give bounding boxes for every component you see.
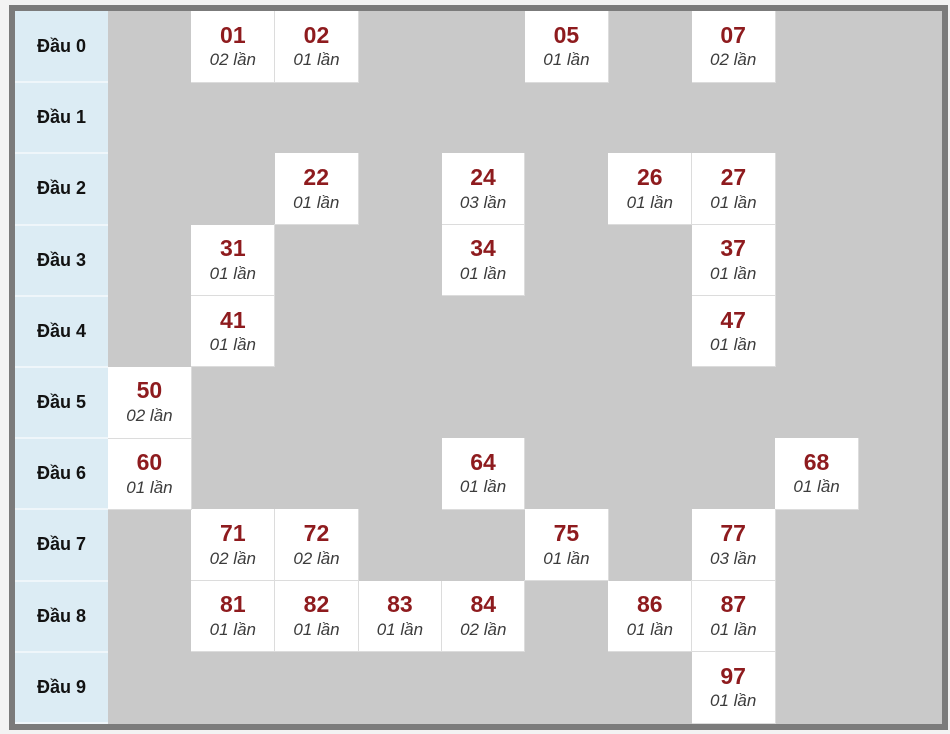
empty-cell xyxy=(608,438,691,509)
table-row-dau-3: Đầu 33101 lần3401 lần3701 lần xyxy=(15,225,942,296)
cell-count: 01 lần xyxy=(608,619,691,642)
number-cell-50: 5002 lần xyxy=(108,367,191,438)
cell-count: 01 lần xyxy=(442,476,525,499)
row-label-dau-3: Đầu 3 xyxy=(15,225,108,296)
table-row-dau-8: Đầu 88101 lần8201 lần8301 lần8402 lần860… xyxy=(15,581,942,652)
empty-cell xyxy=(775,581,858,652)
cell-number: 75 xyxy=(525,519,608,548)
empty-cell xyxy=(859,225,942,296)
empty-cell xyxy=(775,153,858,224)
empty-cell xyxy=(859,367,942,438)
number-cell-22: 2201 lần xyxy=(275,153,358,224)
cell-number: 02 xyxy=(275,21,357,50)
empty-cell xyxy=(275,367,358,438)
number-cell-24: 2403 lần xyxy=(442,153,525,224)
cell-number: 24 xyxy=(442,163,525,192)
cell-number: 83 xyxy=(359,590,441,619)
empty-cell xyxy=(525,225,608,296)
cell-count: 02 lần xyxy=(275,548,357,571)
cell-number: 72 xyxy=(275,519,357,548)
cell-count: 01 lần xyxy=(359,619,441,642)
empty-cell xyxy=(358,367,441,438)
empty-cell xyxy=(859,438,942,509)
empty-cell xyxy=(608,11,691,82)
number-cell-01: 0102 lần xyxy=(191,11,274,82)
table-row-dau-4: Đầu 44101 lần4701 lần xyxy=(15,296,942,367)
cell-count: 01 lần xyxy=(692,192,774,215)
empty-cell xyxy=(525,153,608,224)
cell-number: 26 xyxy=(608,163,691,192)
empty-cell xyxy=(191,652,274,723)
empty-cell xyxy=(608,652,691,723)
empty-cell xyxy=(775,296,858,367)
empty-cell xyxy=(775,82,858,153)
cell-number: 27 xyxy=(692,163,774,192)
number-cell-81: 8101 lần xyxy=(191,581,274,652)
cell-number: 84 xyxy=(442,590,524,619)
cell-number: 68 xyxy=(775,448,858,477)
cell-count: 01 lần xyxy=(191,619,274,642)
empty-cell xyxy=(442,11,525,82)
empty-cell xyxy=(275,652,358,723)
empty-cell xyxy=(775,652,858,723)
cell-number: 41 xyxy=(191,306,274,335)
empty-cell xyxy=(608,296,691,367)
cell-count: 02 lần xyxy=(442,619,524,642)
number-cell-75: 7501 lần xyxy=(525,509,608,580)
empty-cell xyxy=(108,652,191,723)
empty-cell xyxy=(358,509,441,580)
cell-count: 01 lần xyxy=(692,334,775,357)
row-label-dau-5: Đầu 5 xyxy=(15,367,108,438)
cell-count: 01 lần xyxy=(692,619,774,642)
table-row-dau-0: Đầu 00102 lần0201 lần0501 lần0702 lần xyxy=(15,11,942,82)
empty-cell xyxy=(108,581,191,652)
empty-cell xyxy=(859,296,942,367)
empty-cell xyxy=(358,438,441,509)
empty-cell xyxy=(108,82,191,153)
number-cell-26: 2601 lần xyxy=(608,153,691,224)
table-row-dau-1: Đầu 1 xyxy=(15,82,942,153)
empty-cell xyxy=(692,438,775,509)
cell-count: 01 lần xyxy=(275,619,357,642)
empty-cell xyxy=(191,82,274,153)
empty-cell xyxy=(525,652,608,723)
cell-number: 37 xyxy=(692,234,775,263)
cell-count: 03 lần xyxy=(692,548,775,571)
cell-count: 03 lần xyxy=(442,192,525,215)
empty-cell xyxy=(859,652,942,723)
empty-cell xyxy=(442,509,525,580)
cell-count: 01 lần xyxy=(442,263,525,286)
row-label-dau-6: Đầu 6 xyxy=(15,438,108,509)
number-cell-84: 8402 lần xyxy=(442,581,525,652)
table-row-dau-6: Đầu 66001 lần6401 lần6801 lần xyxy=(15,438,942,509)
number-cell-60: 6001 lần xyxy=(108,438,191,509)
cell-count: 01 lần xyxy=(775,476,858,499)
empty-cell xyxy=(442,82,525,153)
row-label-dau-8: Đầu 8 xyxy=(15,581,108,652)
row-label-dau-2: Đầu 2 xyxy=(15,153,108,224)
frequency-table-frame: Đầu 00102 lần0201 lần0501 lần0702 lầnĐầu… xyxy=(9,5,948,730)
frequency-table-body: Đầu 00102 lần0201 lần0501 lần0702 lầnĐầu… xyxy=(15,11,942,723)
empty-cell xyxy=(608,509,691,580)
empty-cell xyxy=(358,652,441,723)
cell-count: 01 lần xyxy=(692,690,775,713)
cell-number: 77 xyxy=(692,519,775,548)
empty-cell xyxy=(358,225,441,296)
row-label-dau-7: Đầu 7 xyxy=(15,509,108,580)
cell-count: 02 lần xyxy=(191,49,274,72)
empty-cell xyxy=(525,581,608,652)
cell-count: 01 lần xyxy=(275,49,357,72)
row-label-dau-9: Đầu 9 xyxy=(15,652,108,723)
number-cell-47: 4701 lần xyxy=(692,296,775,367)
empty-cell xyxy=(108,296,191,367)
cell-count: 01 lần xyxy=(525,49,608,72)
cell-count: 01 lần xyxy=(108,477,191,500)
number-cell-86: 8601 lần xyxy=(608,581,691,652)
empty-cell xyxy=(442,296,525,367)
cell-number: 82 xyxy=(275,590,357,619)
empty-cell xyxy=(108,153,191,224)
cell-number: 50 xyxy=(108,376,191,405)
number-cell-82: 8201 lần xyxy=(275,581,358,652)
number-cell-34: 3401 lần xyxy=(442,225,525,296)
number-cell-31: 3101 lần xyxy=(191,225,274,296)
number-cell-07: 0702 lần xyxy=(692,11,775,82)
cell-number: 22 xyxy=(275,163,358,192)
cell-count: 01 lần xyxy=(608,192,691,215)
empty-cell xyxy=(859,581,942,652)
table-row-dau-9: Đầu 99701 lần xyxy=(15,652,942,723)
cell-count: 01 lần xyxy=(692,263,775,286)
row-label-dau-4: Đầu 4 xyxy=(15,296,108,367)
empty-cell xyxy=(692,367,775,438)
empty-cell xyxy=(191,367,274,438)
cell-number: 64 xyxy=(442,448,525,477)
cell-number: 97 xyxy=(692,662,775,691)
empty-cell xyxy=(775,225,858,296)
empty-cell xyxy=(859,153,942,224)
empty-cell xyxy=(108,11,191,82)
empty-cell xyxy=(275,438,358,509)
cell-number: 31 xyxy=(191,234,274,263)
cell-number: 34 xyxy=(442,234,525,263)
empty-cell xyxy=(275,225,358,296)
number-cell-41: 4101 lần xyxy=(191,296,274,367)
cell-number: 60 xyxy=(108,448,191,477)
number-cell-02: 0201 lần xyxy=(275,11,358,82)
cell-number: 71 xyxy=(191,519,274,548)
row-label-dau-0: Đầu 0 xyxy=(15,11,108,82)
empty-cell xyxy=(859,11,942,82)
empty-cell xyxy=(358,153,441,224)
number-cell-71: 7102 lần xyxy=(191,509,274,580)
empty-cell xyxy=(108,225,191,296)
empty-cell xyxy=(108,509,191,580)
table-row-dau-5: Đầu 55002 lần xyxy=(15,367,942,438)
cell-number: 05 xyxy=(525,21,608,50)
empty-cell xyxy=(775,367,858,438)
table-row-dau-7: Đầu 77102 lần7202 lần7501 lần7703 lần xyxy=(15,509,942,580)
cell-number: 81 xyxy=(191,590,274,619)
cell-count: 01 lần xyxy=(191,263,274,286)
table-row-dau-2: Đầu 22201 lần2403 lần2601 lần2701 lần xyxy=(15,153,942,224)
cell-number: 87 xyxy=(692,590,774,619)
empty-cell xyxy=(275,296,358,367)
empty-cell xyxy=(525,438,608,509)
empty-cell xyxy=(442,367,525,438)
number-cell-97: 9701 lần xyxy=(692,652,775,723)
number-cell-37: 3701 lần xyxy=(692,225,775,296)
empty-cell xyxy=(775,11,858,82)
number-cell-27: 2701 lần xyxy=(692,153,775,224)
empty-cell xyxy=(608,225,691,296)
cell-number: 47 xyxy=(692,306,775,335)
empty-cell xyxy=(775,509,858,580)
cell-number: 86 xyxy=(608,590,691,619)
cell-count: 02 lần xyxy=(692,49,775,72)
empty-cell xyxy=(442,652,525,723)
empty-cell xyxy=(859,82,942,153)
cell-number: 01 xyxy=(191,21,274,50)
number-cell-72: 7202 lần xyxy=(275,509,358,580)
cell-count: 02 lần xyxy=(191,548,274,571)
empty-cell xyxy=(358,296,441,367)
empty-cell xyxy=(191,438,274,509)
empty-cell xyxy=(608,367,691,438)
empty-cell xyxy=(191,153,274,224)
number-cell-64: 6401 lần xyxy=(442,438,525,509)
row-label-dau-1: Đầu 1 xyxy=(15,82,108,153)
empty-cell xyxy=(275,82,358,153)
empty-cell xyxy=(525,82,608,153)
number-cell-83: 8301 lần xyxy=(358,581,441,652)
empty-cell xyxy=(859,509,942,580)
frequency-table: Đầu 00102 lần0201 lần0501 lần0702 lầnĐầu… xyxy=(15,11,942,724)
cell-count: 02 lần xyxy=(108,405,191,428)
empty-cell xyxy=(358,11,441,82)
empty-cell xyxy=(358,82,441,153)
empty-cell xyxy=(525,367,608,438)
cell-number: 07 xyxy=(692,21,775,50)
cell-count: 01 lần xyxy=(525,548,608,571)
empty-cell xyxy=(608,82,691,153)
empty-cell xyxy=(692,82,775,153)
number-cell-68: 6801 lần xyxy=(775,438,858,509)
empty-cell xyxy=(525,296,608,367)
number-cell-05: 0501 lần xyxy=(525,11,608,82)
cell-count: 01 lần xyxy=(191,334,274,357)
number-cell-77: 7703 lần xyxy=(692,509,775,580)
number-cell-87: 8701 lần xyxy=(692,581,775,652)
cell-count: 01 lần xyxy=(275,192,358,215)
